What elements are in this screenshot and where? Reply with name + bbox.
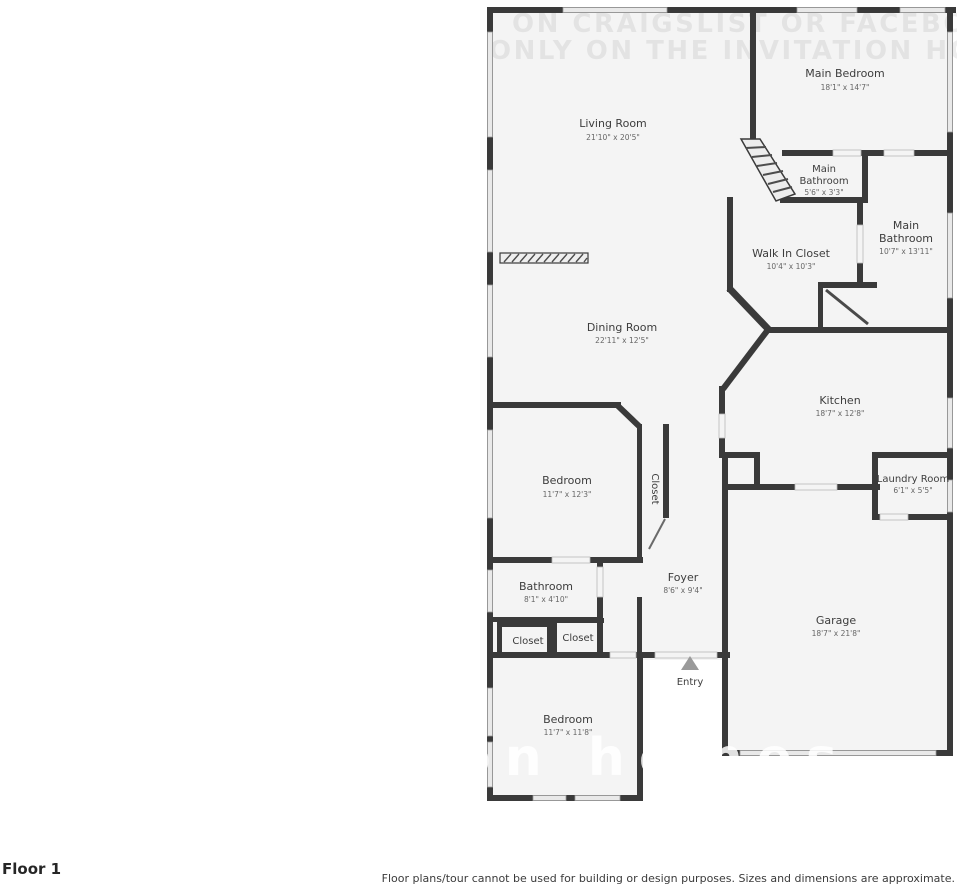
room-label-entry: Entry [677, 677, 704, 688]
hatched-wall-strip [500, 253, 588, 263]
room-dims-dining-room: 22'11" x 12'5" [595, 336, 649, 345]
room-label-closet-left: Closet [512, 636, 543, 647]
entry-door-opening [655, 652, 717, 658]
room-dims-main-bathroom: 10'7" x 13'11" [879, 247, 933, 256]
room-label-kitchen: Kitchen [819, 394, 860, 407]
floor-label: Floor 1 [2, 860, 61, 878]
room-label-laundry-room: Laundry Room [877, 474, 949, 485]
watermark-line2: ONLY ON THE INVITATION HOMES WE [489, 36, 957, 66]
room-label-closet-right: Closet [562, 633, 593, 644]
room-dims-bathroom: 8'1" x 4'10" [524, 595, 568, 604]
room-dims-laundry-room: 6'1" x 5'5" [893, 486, 932, 495]
room-dims-main-bathroom-small: 5'6" x 3'3" [804, 188, 843, 197]
disclaimer-text: Floor plans/tour cannot be used for buil… [382, 872, 955, 885]
room-label-bedroom-mid: Bedroom [542, 474, 592, 487]
room-label-walk-in-closet: Walk In Closet [752, 247, 831, 260]
watermark-bottom: on homes [455, 728, 851, 788]
room-dims-living-room: 21'10" x 20'5" [586, 133, 640, 142]
room-label-main-bathroom-1: Main [893, 219, 919, 232]
room-label-main-bathroom-small-2: Bathroom [799, 176, 848, 187]
room-dims-bedroom-mid: 11'7" x 12'3" [543, 490, 592, 499]
room-label-main-bathroom-small-1: Main [812, 164, 836, 175]
room-label-closet-hall: Closet [649, 473, 660, 504]
watermark-top: ON CRAIGSLIST OR FACEBOOK MAR ONLY ON TH… [489, 9, 957, 66]
room-dims-garage: 18'7" x 21'8" [812, 629, 861, 638]
room-dims-walk-in-closet: 10'4" x 10'3" [767, 262, 816, 271]
room-label-dining-room: Dining Room [587, 321, 657, 334]
room-label-bathroom: Bathroom [519, 580, 573, 593]
room-label-garage: Garage [816, 614, 857, 627]
floor-plan-drawing: ON CRAIGSLIST OR FACEBOOK MAR ONLY ON TH… [0, 0, 957, 888]
room-dims-foyer: 8'6" x 9'4" [663, 586, 702, 595]
room-label-living-room: Living Room [579, 117, 647, 130]
room-dims-kitchen: 18'7" x 12'8" [816, 409, 865, 418]
watermark-line1: ON CRAIGSLIST OR FACEBOOK MAR [512, 9, 957, 39]
room-label-bedroom-bottom: Bedroom [543, 713, 593, 726]
room-label-foyer: Foyer [668, 571, 699, 584]
room-dims-main-bedroom: 18'1" x 14'7" [821, 83, 870, 92]
room-label-main-bathroom-2: Bathroom [879, 232, 933, 245]
room-label-main-bedroom: Main Bedroom [805, 67, 885, 80]
floor-plan-page: ON CRAIGSLIST OR FACEBOOK MAR ONLY ON TH… [0, 0, 957, 888]
